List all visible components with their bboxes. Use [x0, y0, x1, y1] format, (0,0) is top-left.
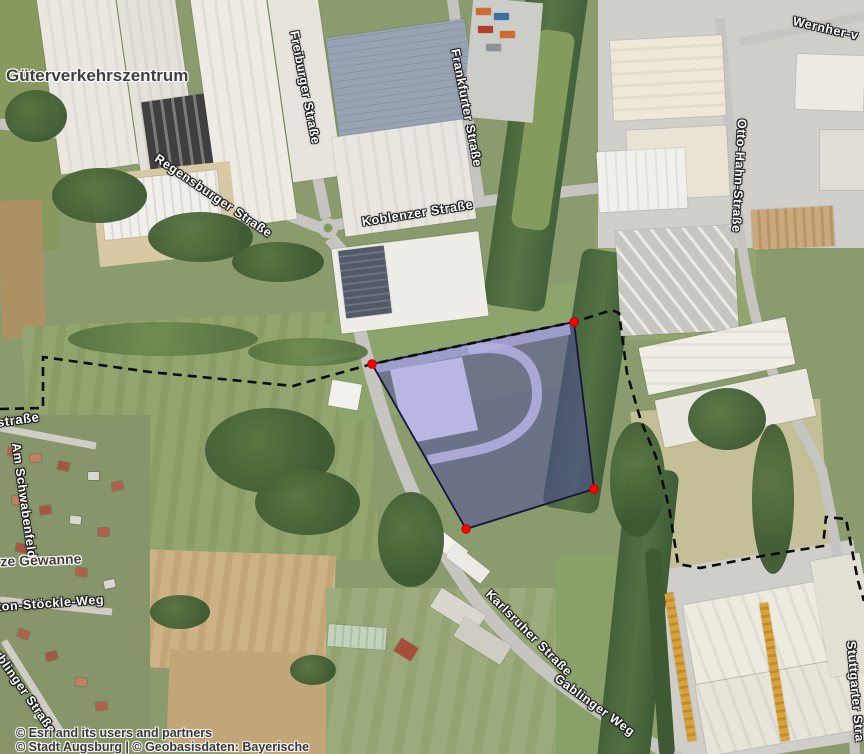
parcel-vertex-handle[interactable]: [462, 525, 471, 534]
parcel-building-highlight: [390, 357, 478, 444]
attribution-line-2: © Stadt Augsburg | © Geobasisdaten: Baye…: [16, 740, 309, 754]
place-label-gewanne: rze Gewanne: [0, 550, 82, 569]
parcel-vertex-handle[interactable]: [368, 360, 377, 369]
map-canvas[interactable]: Freiburger Straße Frankfurter Straße Reg…: [0, 0, 864, 754]
parcel-vertex-handle[interactable]: [590, 485, 599, 494]
attribution-line-1: © Esri and its users and partners: [16, 726, 212, 740]
parcel-overlay: [0, 0, 864, 754]
place-label-gueterverkehrszentrum: Güterverkehrszentrum: [6, 66, 188, 86]
parcel-vertex-handle[interactable]: [570, 318, 579, 327]
